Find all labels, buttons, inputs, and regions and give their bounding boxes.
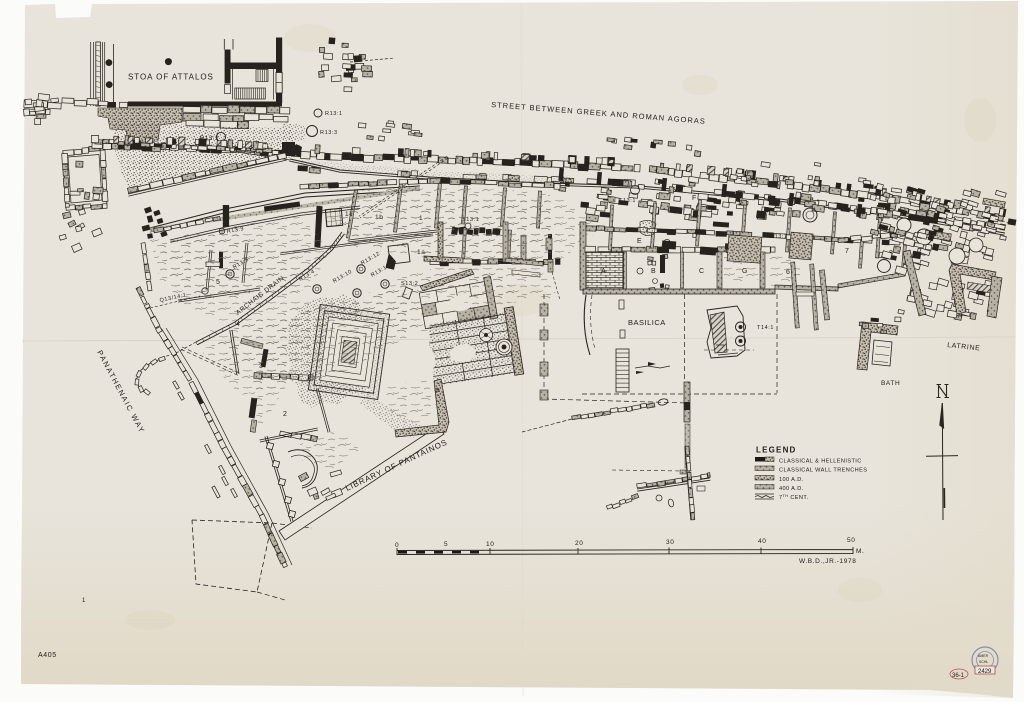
svg-text:BATH: BATH xyxy=(881,380,900,387)
svg-text:D: D xyxy=(692,233,698,240)
svg-text:F: F xyxy=(692,195,697,202)
svg-text:M.: M. xyxy=(856,548,864,555)
svg-text:20: 20 xyxy=(575,540,583,547)
svg-text:10: 10 xyxy=(486,541,494,548)
svg-text:U13:1: U13:1 xyxy=(770,234,788,240)
svg-text:R13:3: R13:3 xyxy=(320,130,338,136)
svg-text:36-1: 36-1 xyxy=(952,673,965,679)
svg-text:400 A.D.: 400 A.D. xyxy=(779,486,804,492)
svg-text:CLASSICAL WALL TRENCHES: CLASSICAL WALL TRENCHES xyxy=(779,468,867,474)
svg-text:E: E xyxy=(637,238,642,245)
svg-text:50: 50 xyxy=(847,537,855,544)
svg-text:B: B xyxy=(651,268,656,275)
svg-text:A405: A405 xyxy=(38,652,57,659)
svg-text:SCHL: SCHL xyxy=(979,660,988,664)
svg-text:40: 40 xyxy=(758,538,766,545)
svg-text:BASILICA: BASILICA xyxy=(628,318,666,327)
svg-text:AMER: AMER xyxy=(978,654,989,658)
svg-text:C: C xyxy=(699,268,705,275)
svg-text:LEGEND: LEGEND xyxy=(756,446,797,455)
svg-text:100 A.D.: 100 A.D. xyxy=(779,477,804,483)
svg-text:1: 1 xyxy=(82,598,86,604)
svg-text:30: 30 xyxy=(666,539,674,546)
svg-text:R13:1: R13:1 xyxy=(325,111,343,117)
svg-text:5: 5 xyxy=(444,541,448,548)
svg-text:STOA OF ATTALOS: STOA OF ATTALOS xyxy=(128,73,214,82)
svg-text:T13:1: T13:1 xyxy=(619,198,636,204)
svg-text:W.B.D.,JR.-1978: W.B.D.,JR.-1978 xyxy=(799,558,856,565)
svg-text:A: A xyxy=(601,268,606,275)
svg-text:2: 2 xyxy=(283,411,288,418)
svg-text:7: 7 xyxy=(845,248,850,255)
svg-text:2429: 2429 xyxy=(978,669,992,675)
svg-text:T14:1: T14:1 xyxy=(757,325,774,331)
svg-text:0: 0 xyxy=(395,542,399,549)
svg-text:CLASSICAL & HELLENISTIC: CLASSICAL & HELLENISTIC xyxy=(779,459,862,465)
